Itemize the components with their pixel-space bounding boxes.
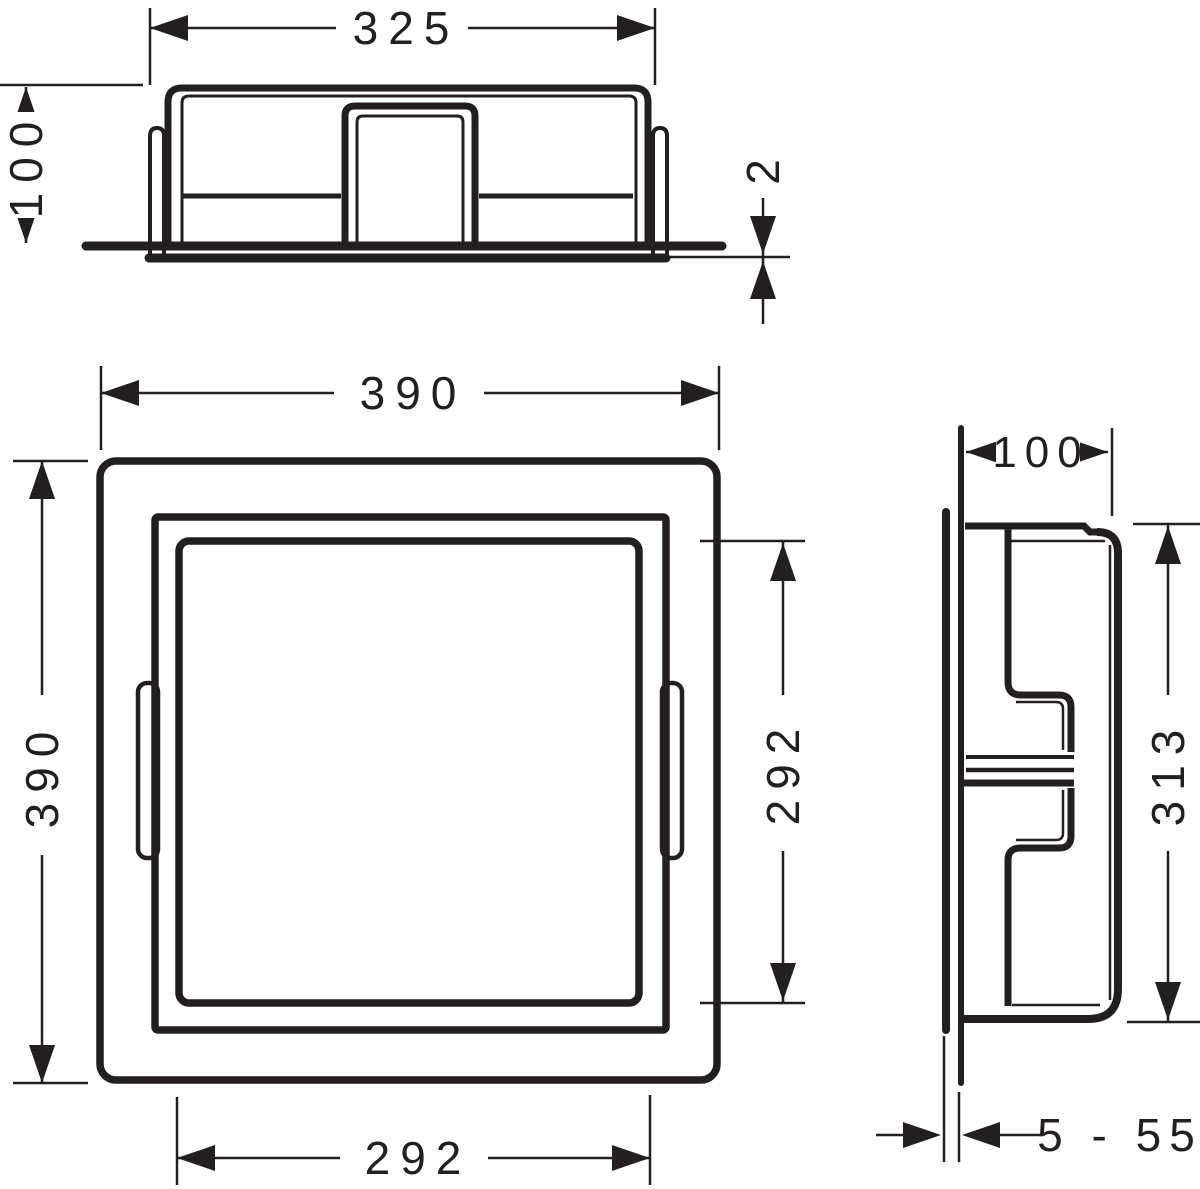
front-view: 390 390 292: [13, 366, 809, 1185]
dim-label-top-height: 100: [0, 112, 52, 219]
center-divider-inner: [357, 116, 463, 244]
dimension-325-width: 325: [150, 2, 655, 85]
dimension-390-width: 390: [101, 366, 719, 450]
dim-label-top-width: 325: [353, 2, 460, 54]
arrowhead-left-icon: [101, 380, 139, 406]
dimension-100-depth: 100: [966, 428, 1112, 516]
mounting-clip-right: [653, 128, 667, 257]
mounting-clip-left: [150, 128, 164, 257]
center-divider-outer: [345, 106, 475, 244]
arrowhead-right-icon: [612, 1145, 650, 1171]
dim-label-front-height: 390: [16, 722, 68, 829]
dimension-2-flange: 2: [737, 140, 789, 324]
arrowhead-right-icon: [903, 1122, 941, 1148]
arrowhead-up-icon: [750, 261, 776, 299]
dimension-390-height: 390: [13, 461, 88, 1083]
divider-profile-lower: [1008, 788, 1071, 1006]
arrowhead-down-icon: [1155, 982, 1181, 1020]
dim-label-front-width: 390: [360, 367, 467, 419]
dimension-5-55-tile: 5 - 55: [876, 1036, 1200, 1162]
dim-label-opening-height: 292: [757, 719, 809, 826]
back-and-bottom-wall: [958, 532, 1118, 1019]
housing-top-outline: [86, 88, 790, 258]
arrowhead-down-icon: [750, 216, 776, 254]
housing-side-outline: [946, 428, 1118, 1083]
top-wall: [965, 526, 1097, 532]
divider-inner-lower: [1016, 790, 1063, 840]
frame-front-outline: [100, 461, 717, 1080]
outer-frame: [100, 461, 717, 1080]
dim-label-side-height: 313: [1142, 720, 1194, 827]
dim-label-tile-range: 5 - 55: [1037, 1109, 1200, 1161]
arrowhead-down-icon: [770, 963, 796, 1001]
divider-inner-upper: [1016, 702, 1063, 750]
side-view: 100 313: [876, 428, 1200, 1162]
dim-label-opening-width: 292: [365, 1132, 472, 1184]
dimension-100-height: 100: [0, 85, 143, 243]
technical-drawing: 325 100: [0, 0, 1200, 1189]
arrowhead-up-icon: [29, 461, 55, 499]
arrowhead-up-icon: [1155, 526, 1181, 564]
box-inner-wall: [182, 96, 636, 247]
arrowhead-down-icon: [29, 1045, 55, 1083]
arrowhead-up-icon: [770, 543, 796, 581]
arrowhead-right-icon: [681, 380, 719, 406]
middle-frame: [155, 517, 666, 1030]
arrowhead-left-icon: [962, 1122, 1000, 1148]
dim-label-depth: 100: [992, 428, 1089, 477]
arrowhead-right-icon: [617, 15, 655, 41]
box-outer-wall: [168, 88, 648, 247]
arrowhead-left-icon: [177, 1145, 215, 1171]
top-view: 325 100: [0, 2, 790, 324]
dimension-313-height: 313: [1127, 524, 1200, 1022]
dim-label-flange-thickness: 2: [737, 149, 789, 185]
arrowhead-left-icon: [150, 15, 188, 41]
dimension-292-width: 292: [177, 1095, 650, 1185]
inner-opening: [179, 541, 639, 1003]
divider-profile-upper: [1008, 529, 1071, 752]
technical-drawing-page: 325 100: [0, 0, 1200, 1189]
